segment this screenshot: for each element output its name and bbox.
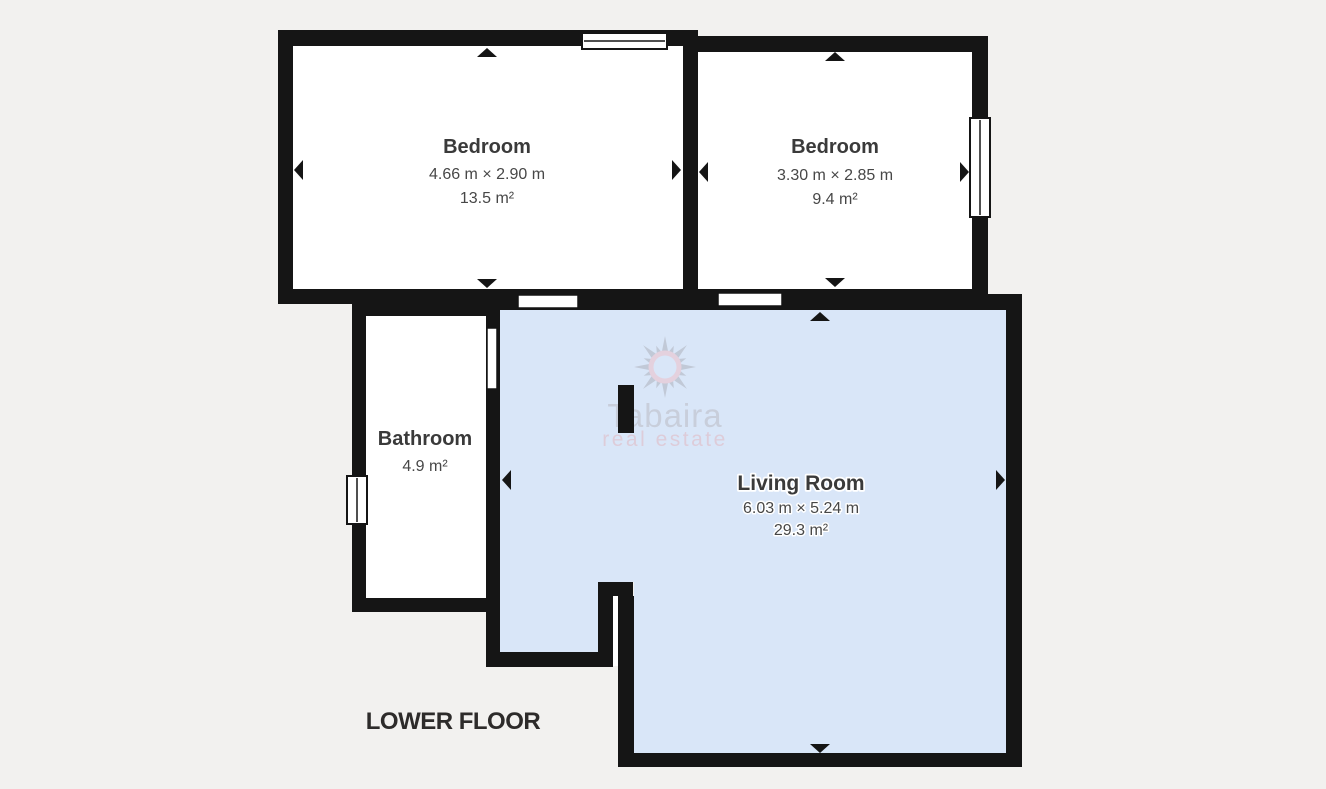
door-bathroom xyxy=(487,328,497,389)
floor-title: LOWER FLOOR xyxy=(366,708,541,735)
room-area: 9.4 m² xyxy=(812,191,858,208)
room-dimensions: 4.66 m × 2.90 m xyxy=(429,166,545,183)
doorway-gap xyxy=(613,596,618,666)
floor-plan-canvas: Tabaira real estate xyxy=(0,0,1326,789)
room-dimensions: 6.03 m × 5.24 m xyxy=(743,500,859,517)
room-name: Bedroom xyxy=(791,136,879,158)
door-opening-bedroom2 xyxy=(718,293,782,306)
window-bedroom1-top xyxy=(582,33,667,49)
room-name: Bedroom xyxy=(443,136,531,158)
wall-column-stub xyxy=(618,385,634,433)
floor-plan-page: Tabaira real estate xyxy=(0,0,1326,789)
door-opening-living xyxy=(518,295,578,308)
window-bedroom2-right xyxy=(970,118,990,217)
room-name: Bathroom xyxy=(378,428,472,450)
room-area: 4.9 m² xyxy=(402,458,448,475)
room-area: 13.5 m² xyxy=(460,190,515,207)
room-dimensions: 3.30 m × 2.85 m xyxy=(777,167,893,184)
room-area: 29.3 m² xyxy=(774,522,829,539)
bathroom-floor xyxy=(366,316,486,598)
room-name: Living Room xyxy=(737,472,864,495)
window-bathroom-left xyxy=(347,476,367,524)
